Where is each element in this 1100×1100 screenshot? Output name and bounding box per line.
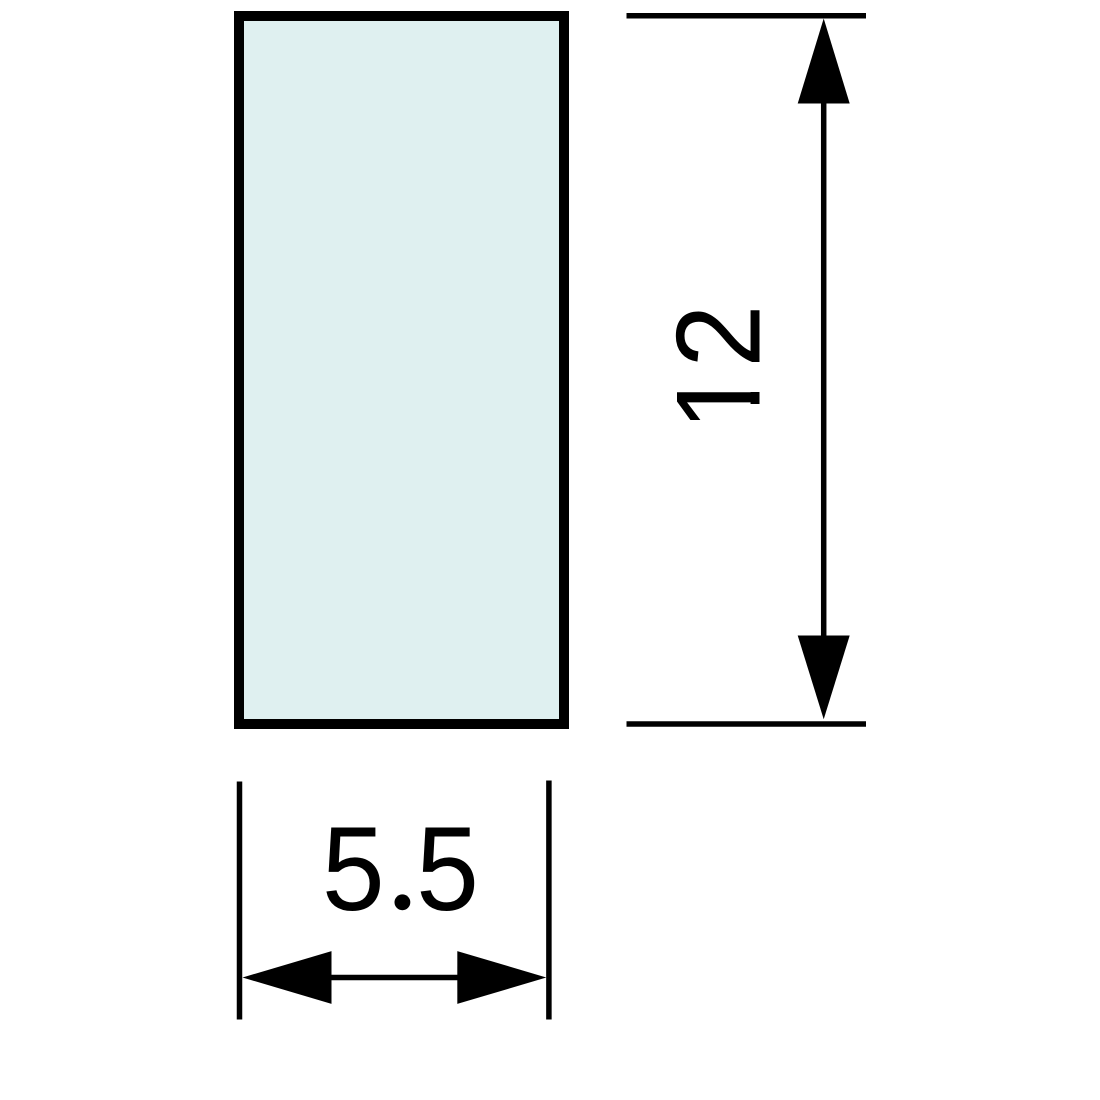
svg-text:12: 12 [652,305,786,431]
svg-text:5.5: 5.5 [322,802,479,936]
